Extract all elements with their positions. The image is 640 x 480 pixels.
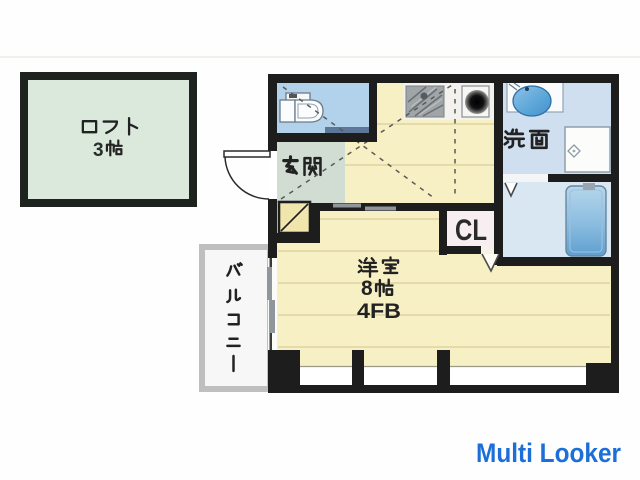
svg-text:CL: CL [455,214,487,247]
svg-text:3: 3 [93,140,104,161]
svg-text:4FB: 4FB [357,300,401,323]
svg-text:Multi Looker: Multi Looker [476,438,621,468]
svg-text:8: 8 [361,277,373,300]
